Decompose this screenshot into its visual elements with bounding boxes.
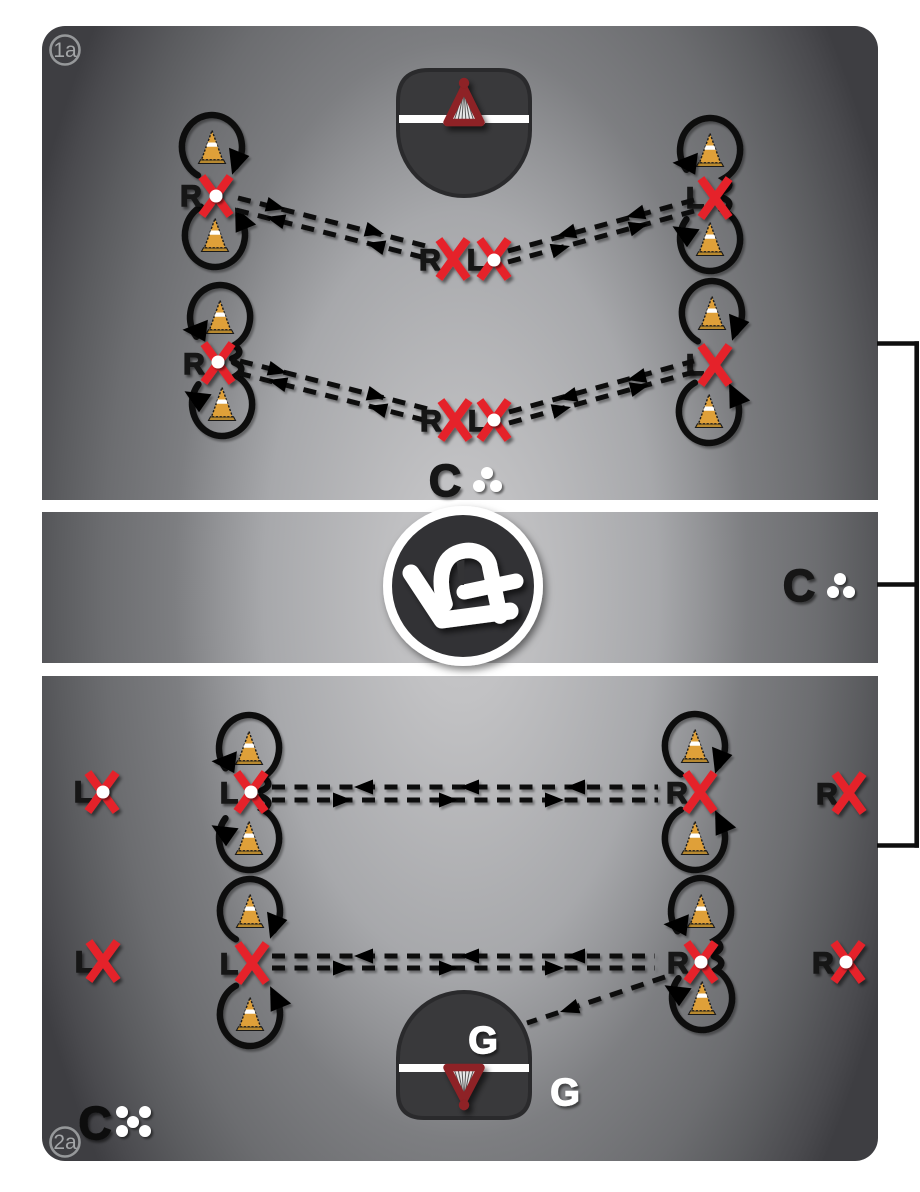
svg-text:C: C	[78, 1097, 111, 1149]
svg-text:L: L	[220, 948, 238, 981]
svg-text:R: R	[180, 180, 202, 213]
svg-text:R: R	[420, 405, 442, 438]
svg-text:G: G	[550, 1072, 580, 1114]
svg-text:R: R	[666, 777, 688, 810]
svg-text:C: C	[429, 455, 462, 506]
svg-text:1a: 1a	[53, 39, 77, 62]
svg-text:R: R	[667, 947, 689, 980]
svg-text:R: R	[183, 348, 205, 381]
svg-text:L: L	[220, 777, 238, 810]
svg-text:2a: 2a	[53, 1131, 77, 1154]
svg-text:R: R	[812, 947, 834, 980]
svg-text:C: C	[783, 560, 816, 611]
svg-text:R: R	[419, 244, 441, 277]
svg-text:G: G	[468, 1020, 498, 1062]
